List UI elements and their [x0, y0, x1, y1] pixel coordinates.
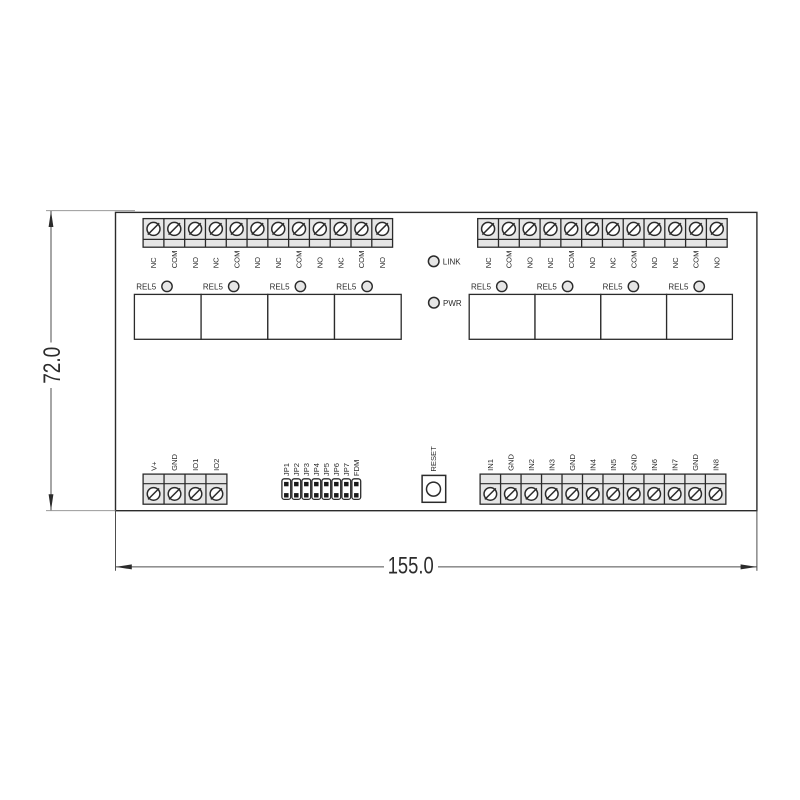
svg-text:GND: GND	[507, 454, 516, 471]
svg-text:NO: NO	[316, 257, 325, 268]
svg-text:LINK: LINK	[443, 257, 461, 266]
svg-text:COM: COM	[357, 251, 366, 269]
svg-text:GND: GND	[568, 454, 577, 471]
svg-text:IN5: IN5	[609, 459, 618, 471]
svg-text:JP7: JP7	[342, 463, 351, 476]
svg-text:NO: NO	[378, 257, 387, 268]
svg-text:GND: GND	[691, 454, 700, 471]
svg-text:IN1: IN1	[486, 459, 495, 471]
svg-text:JP2: JP2	[292, 463, 301, 476]
svg-text:COM: COM	[629, 251, 638, 269]
svg-text:REL5: REL5	[203, 282, 224, 291]
svg-text:72.0: 72.0	[39, 347, 66, 384]
svg-text:JP5: JP5	[322, 463, 331, 476]
svg-text:REL5: REL5	[603, 282, 624, 291]
svg-text:REL5: REL5	[136, 282, 157, 291]
svg-text:NC: NC	[212, 257, 221, 268]
svg-text:IN4: IN4	[588, 459, 597, 471]
svg-text:PWR: PWR	[443, 299, 462, 308]
svg-text:NC: NC	[671, 257, 680, 268]
svg-text:COM: COM	[170, 251, 179, 269]
svg-text:REL5: REL5	[270, 282, 291, 291]
svg-text:IN2: IN2	[527, 459, 536, 471]
svg-text:IO1: IO1	[191, 459, 200, 471]
svg-text:JP3: JP3	[302, 463, 311, 476]
svg-text:FDM: FDM	[352, 460, 361, 476]
svg-text:NC: NC	[149, 257, 158, 268]
svg-text:IN8: IN8	[711, 459, 720, 471]
svg-text:COM: COM	[295, 251, 304, 269]
svg-text:COM: COM	[232, 251, 241, 269]
svg-text:NC: NC	[336, 257, 345, 268]
svg-text:JP6: JP6	[332, 463, 341, 476]
svg-text:IN7: IN7	[670, 459, 679, 471]
svg-text:REL5: REL5	[471, 282, 492, 291]
svg-text:NO: NO	[588, 257, 597, 268]
svg-text:NO: NO	[253, 257, 262, 268]
svg-text:COM: COM	[505, 251, 514, 269]
svg-text:REL5: REL5	[537, 282, 558, 291]
svg-text:IN3: IN3	[547, 459, 556, 471]
svg-text:NO: NO	[712, 257, 721, 268]
svg-text:GND: GND	[629, 454, 638, 471]
svg-text:NC: NC	[274, 257, 283, 268]
svg-text:NC: NC	[609, 257, 618, 268]
svg-text:COM: COM	[567, 251, 576, 269]
svg-text:GND: GND	[170, 454, 179, 471]
svg-text:V+: V+	[149, 461, 158, 471]
svg-text:IN6: IN6	[650, 459, 659, 471]
svg-text:NO: NO	[525, 257, 534, 268]
svg-text:IO2: IO2	[212, 459, 221, 471]
svg-text:NC: NC	[484, 257, 493, 268]
svg-text:JP1: JP1	[282, 463, 291, 476]
svg-text:NO: NO	[650, 257, 659, 268]
svg-text:REL5: REL5	[336, 282, 357, 291]
svg-text:RESET: RESET	[429, 446, 438, 472]
svg-text:NO: NO	[191, 257, 200, 268]
svg-text:155.0: 155.0	[388, 552, 434, 579]
svg-text:COM: COM	[692, 251, 701, 269]
svg-text:JP4: JP4	[312, 463, 321, 476]
svg-text:REL5: REL5	[668, 282, 689, 291]
svg-text:NC: NC	[546, 257, 555, 268]
